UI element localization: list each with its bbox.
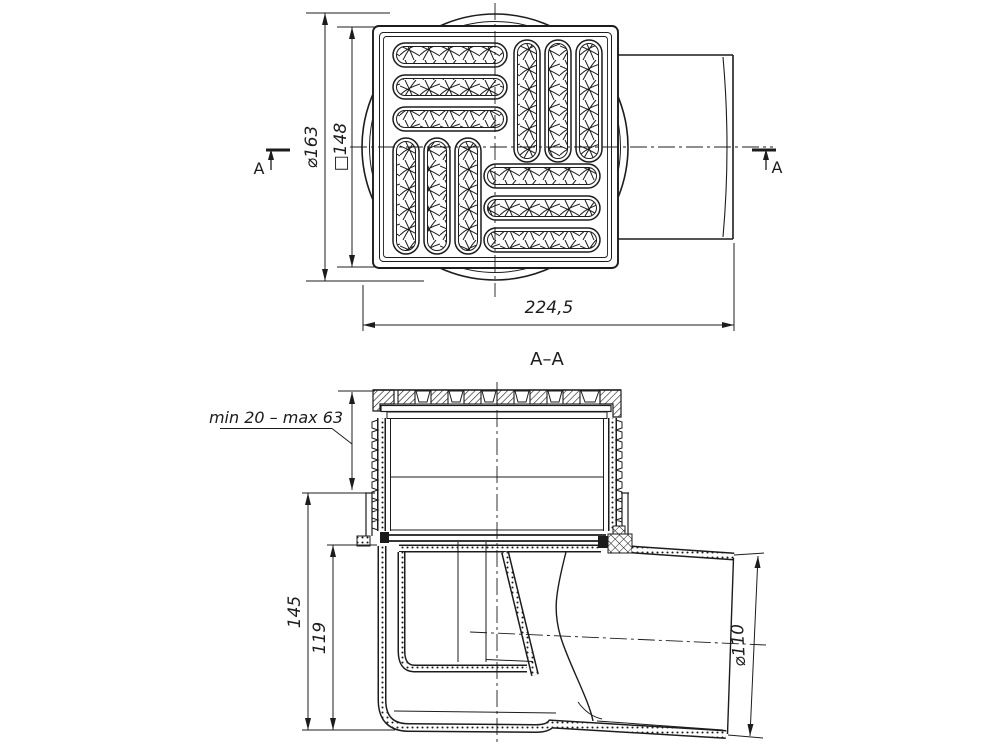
dim-outlet-diameter: ⌀110 bbox=[728, 623, 750, 667]
dim-body-height: 119 bbox=[310, 622, 330, 654]
dim-overall-height: 145 bbox=[285, 596, 305, 628]
trap-cup bbox=[402, 542, 536, 675]
section-view bbox=[220, 382, 766, 746]
section-letter-left: A bbox=[254, 159, 265, 178]
section-dimensions bbox=[220, 391, 764, 738]
dim-flange-diameter: ⌀163 bbox=[302, 126, 322, 169]
section-title: A–A bbox=[530, 349, 564, 370]
technical-drawing: ⌀163 □148 224,5 A A A–A min 20 – max 63 … bbox=[0, 0, 1000, 750]
dim-grate-square: □148 bbox=[331, 123, 351, 172]
centerlines-section bbox=[470, 382, 766, 746]
body-bowl bbox=[382, 546, 734, 735]
section-letter-right: A bbox=[772, 158, 783, 177]
drawing-sheet: ⌀163 □148 224,5 A A A–A min 20 – max 63 … bbox=[0, 0, 1000, 750]
dim-overall-length: 224,5 bbox=[525, 298, 574, 318]
dim-adjustment-range: min 20 – max 63 bbox=[209, 408, 343, 427]
outlet-bell-curve bbox=[556, 552, 593, 721]
